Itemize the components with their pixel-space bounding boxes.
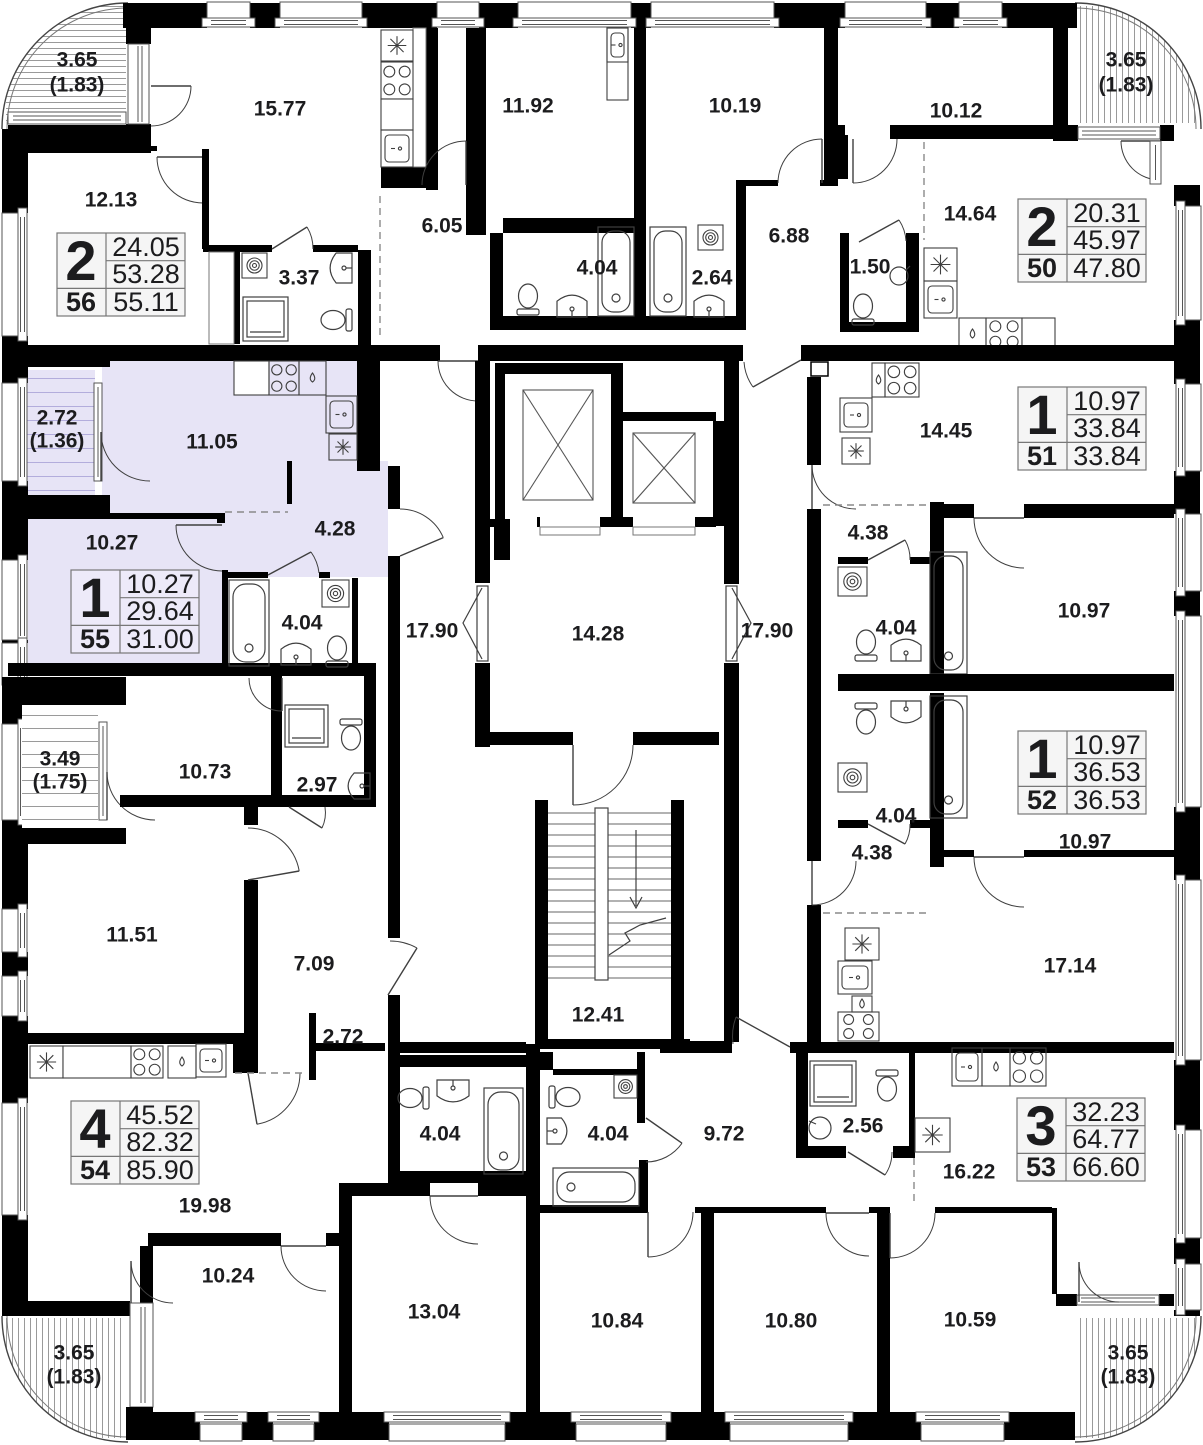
svg-text:11.92: 11.92 <box>502 94 553 117</box>
svg-text:17.90: 17.90 <box>741 619 794 642</box>
svg-text:10.12: 10.12 <box>930 99 983 122</box>
svg-text:3.65: 3.65 <box>57 48 98 71</box>
svg-text:(1.75): (1.75) <box>33 770 88 793</box>
svg-text:(1.36): (1.36) <box>30 429 85 452</box>
svg-text:7.09: 7.09 <box>294 952 335 975</box>
svg-text:1.50: 1.50 <box>850 255 891 278</box>
svg-text:10.73: 10.73 <box>179 760 232 783</box>
svg-text:29.64: 29.64 <box>126 596 194 626</box>
svg-text:9.72: 9.72 <box>704 1122 745 1145</box>
svg-text:54: 54 <box>80 1155 110 1185</box>
svg-text:4.38: 4.38 <box>848 521 889 544</box>
svg-text:16.22: 16.22 <box>943 1160 996 1183</box>
svg-text:10.97: 10.97 <box>1073 730 1141 760</box>
svg-text:10.27: 10.27 <box>86 531 139 554</box>
svg-text:3: 3 <box>1025 1094 1056 1157</box>
svg-text:2.72: 2.72 <box>323 1025 364 1048</box>
svg-text:4: 4 <box>79 1097 110 1160</box>
svg-text:2.56: 2.56 <box>843 1114 884 1137</box>
svg-text:31.00: 31.00 <box>126 624 194 654</box>
svg-text:14.45: 14.45 <box>920 419 973 442</box>
svg-text:85.90: 85.90 <box>126 1155 194 1185</box>
svg-text:17.90: 17.90 <box>406 619 459 642</box>
svg-text:10.97: 10.97 <box>1073 386 1141 416</box>
svg-text:15.77: 15.77 <box>254 97 307 120</box>
svg-text:4.04: 4.04 <box>876 804 917 827</box>
svg-text:(1.83): (1.83) <box>1099 73 1154 96</box>
svg-text:52: 52 <box>1027 785 1057 815</box>
svg-text:4.04: 4.04 <box>577 256 618 279</box>
svg-text:4.04: 4.04 <box>588 1122 629 1145</box>
svg-text:1: 1 <box>1026 727 1057 790</box>
svg-text:2.64: 2.64 <box>692 266 733 289</box>
svg-text:24.05: 24.05 <box>112 232 180 262</box>
svg-text:53.28: 53.28 <box>112 259 180 289</box>
svg-text:19.98: 19.98 <box>179 1194 232 1217</box>
svg-text:20.31: 20.31 <box>1073 198 1141 228</box>
svg-text:4.04: 4.04 <box>282 611 323 634</box>
svg-text:36.53: 36.53 <box>1073 785 1141 815</box>
svg-text:10.24: 10.24 <box>202 1264 255 1287</box>
svg-text:53: 53 <box>1026 1152 1056 1182</box>
svg-text:4.04: 4.04 <box>420 1122 461 1145</box>
svg-text:14.28: 14.28 <box>572 622 625 645</box>
svg-text:10.84: 10.84 <box>591 1309 644 1332</box>
svg-text:14.64: 14.64 <box>944 202 997 225</box>
svg-text:11.51: 11.51 <box>106 923 158 946</box>
svg-text:10.27: 10.27 <box>126 569 194 599</box>
svg-text:6.88: 6.88 <box>769 224 810 247</box>
svg-text:12.13: 12.13 <box>85 188 138 211</box>
svg-text:2.72: 2.72 <box>37 406 78 429</box>
svg-text:13.04: 13.04 <box>408 1300 461 1323</box>
svg-text:10.97: 10.97 <box>1058 599 1111 622</box>
svg-text:64.77: 64.77 <box>1072 1124 1140 1154</box>
svg-text:3.37: 3.37 <box>279 266 320 289</box>
svg-text:3.65: 3.65 <box>1106 48 1147 71</box>
svg-text:11.05: 11.05 <box>186 430 238 453</box>
svg-text:45.52: 45.52 <box>126 1100 194 1130</box>
svg-text:3.65: 3.65 <box>54 1341 95 1364</box>
svg-text:45.97: 45.97 <box>1073 225 1141 255</box>
svg-text:12.41: 12.41 <box>572 1003 625 1026</box>
svg-text:10.80: 10.80 <box>765 1309 818 1332</box>
svg-text:3.65: 3.65 <box>1108 1341 1149 1364</box>
svg-text:55.11: 55.11 <box>113 287 179 317</box>
svg-text:4.04: 4.04 <box>876 616 917 639</box>
svg-text:17.14: 17.14 <box>1044 954 1097 977</box>
svg-text:4.38: 4.38 <box>852 841 893 864</box>
svg-text:33.84: 33.84 <box>1073 441 1141 471</box>
svg-text:(1.83): (1.83) <box>47 1365 102 1388</box>
svg-text:10.19: 10.19 <box>709 94 762 117</box>
svg-text:4.28: 4.28 <box>315 517 356 540</box>
svg-text:51: 51 <box>1027 441 1057 471</box>
svg-text:1: 1 <box>79 566 110 629</box>
svg-text:10.59: 10.59 <box>944 1308 997 1331</box>
svg-text:33.84: 33.84 <box>1073 413 1141 443</box>
svg-text:66.60: 66.60 <box>1072 1152 1140 1182</box>
svg-text:2: 2 <box>1026 195 1057 258</box>
svg-text:50: 50 <box>1027 253 1057 283</box>
svg-text:10.97: 10.97 <box>1059 830 1112 853</box>
svg-text:56: 56 <box>66 287 96 317</box>
svg-text:(1.83): (1.83) <box>50 73 105 96</box>
svg-text:36.53: 36.53 <box>1073 757 1141 787</box>
svg-text:2.97: 2.97 <box>297 773 338 796</box>
svg-text:2: 2 <box>65 229 96 292</box>
svg-text:32.23: 32.23 <box>1072 1097 1140 1127</box>
svg-text:(1.83): (1.83) <box>1101 1365 1156 1388</box>
svg-text:82.32: 82.32 <box>126 1127 194 1157</box>
svg-text:3.49: 3.49 <box>40 747 81 770</box>
svg-text:6.05: 6.05 <box>422 214 463 237</box>
svg-text:47.80: 47.80 <box>1073 253 1141 283</box>
svg-text:55: 55 <box>80 624 110 654</box>
svg-text:1: 1 <box>1026 383 1057 446</box>
